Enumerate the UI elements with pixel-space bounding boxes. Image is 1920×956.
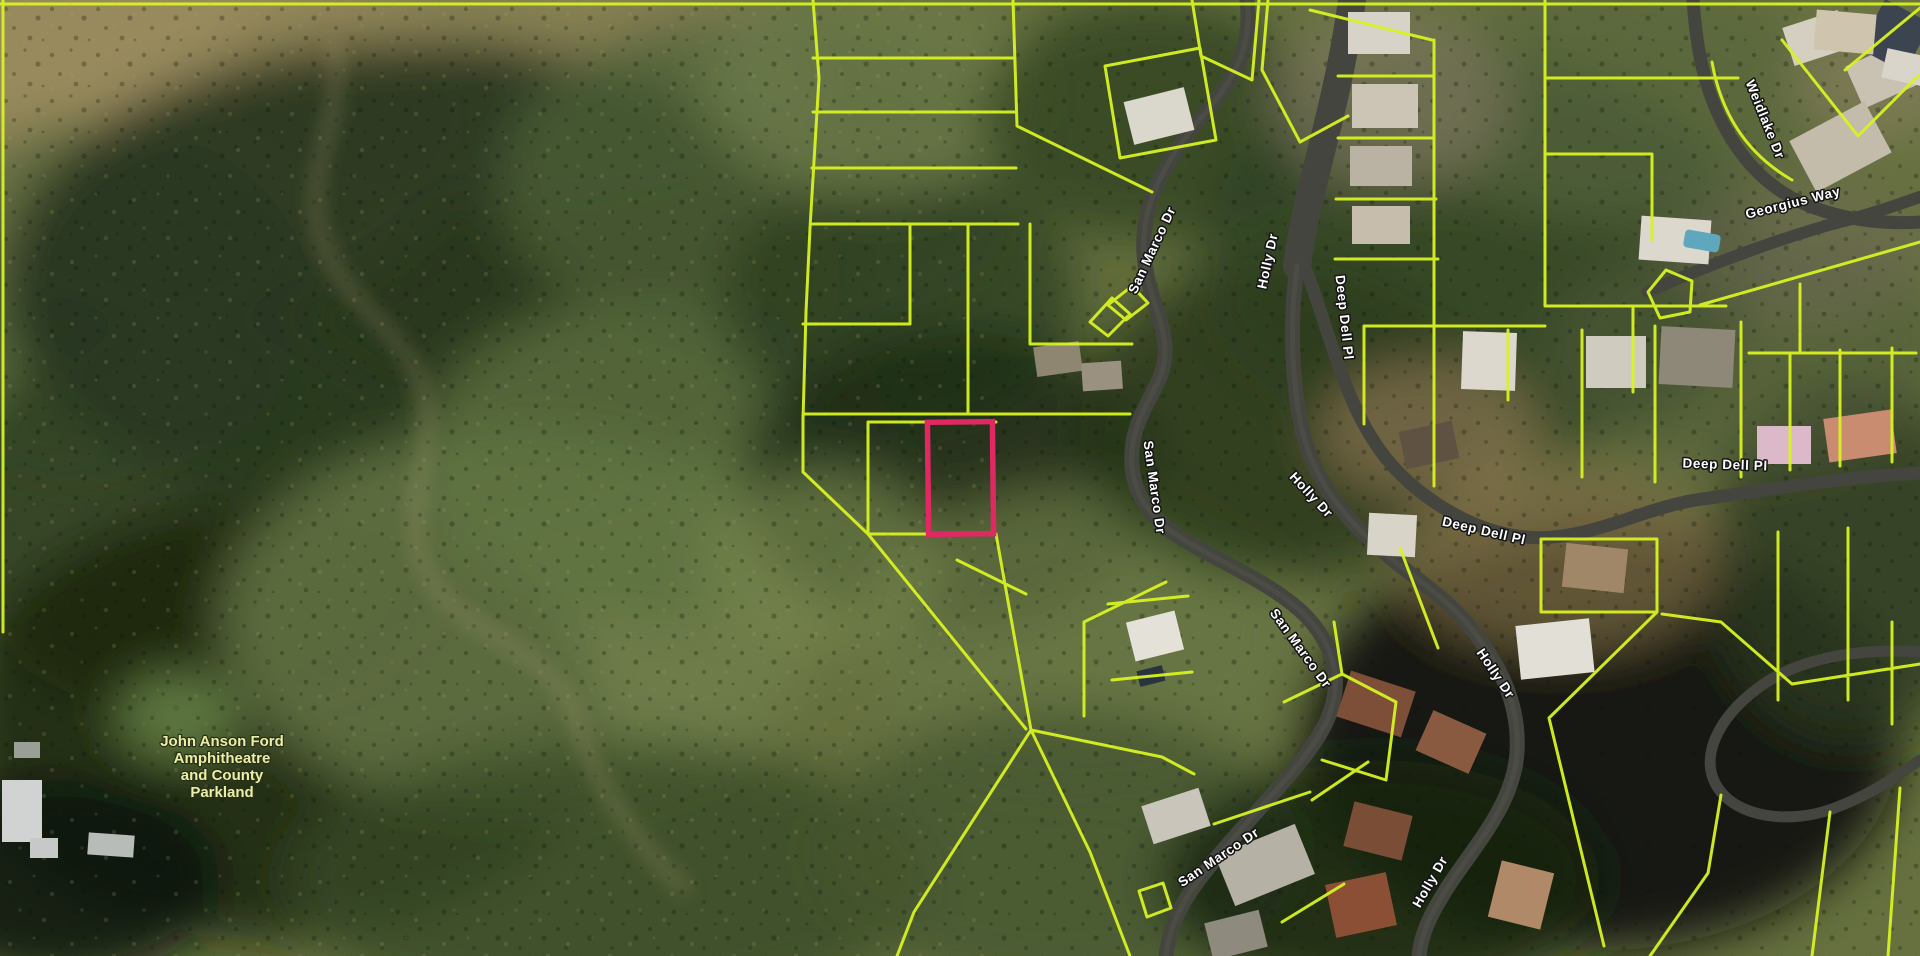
park-label-line: and County	[181, 767, 264, 784]
satellite-terrain-layer	[0, 0, 1920, 956]
park-label-line: Parkland	[190, 784, 253, 801]
park-label-line: Amphitheatre	[174, 750, 271, 767]
map-viewport[interactable]: San Marco DrHolly DrDeep Dell PlSan Marc…	[0, 0, 1920, 956]
street-label: Deep Dell Pl	[1682, 456, 1768, 474]
park-label-line: John Anson Ford	[160, 733, 284, 750]
map-canvas[interactable]: San Marco DrHolly DrDeep Dell PlSan Marc…	[0, 0, 1920, 956]
